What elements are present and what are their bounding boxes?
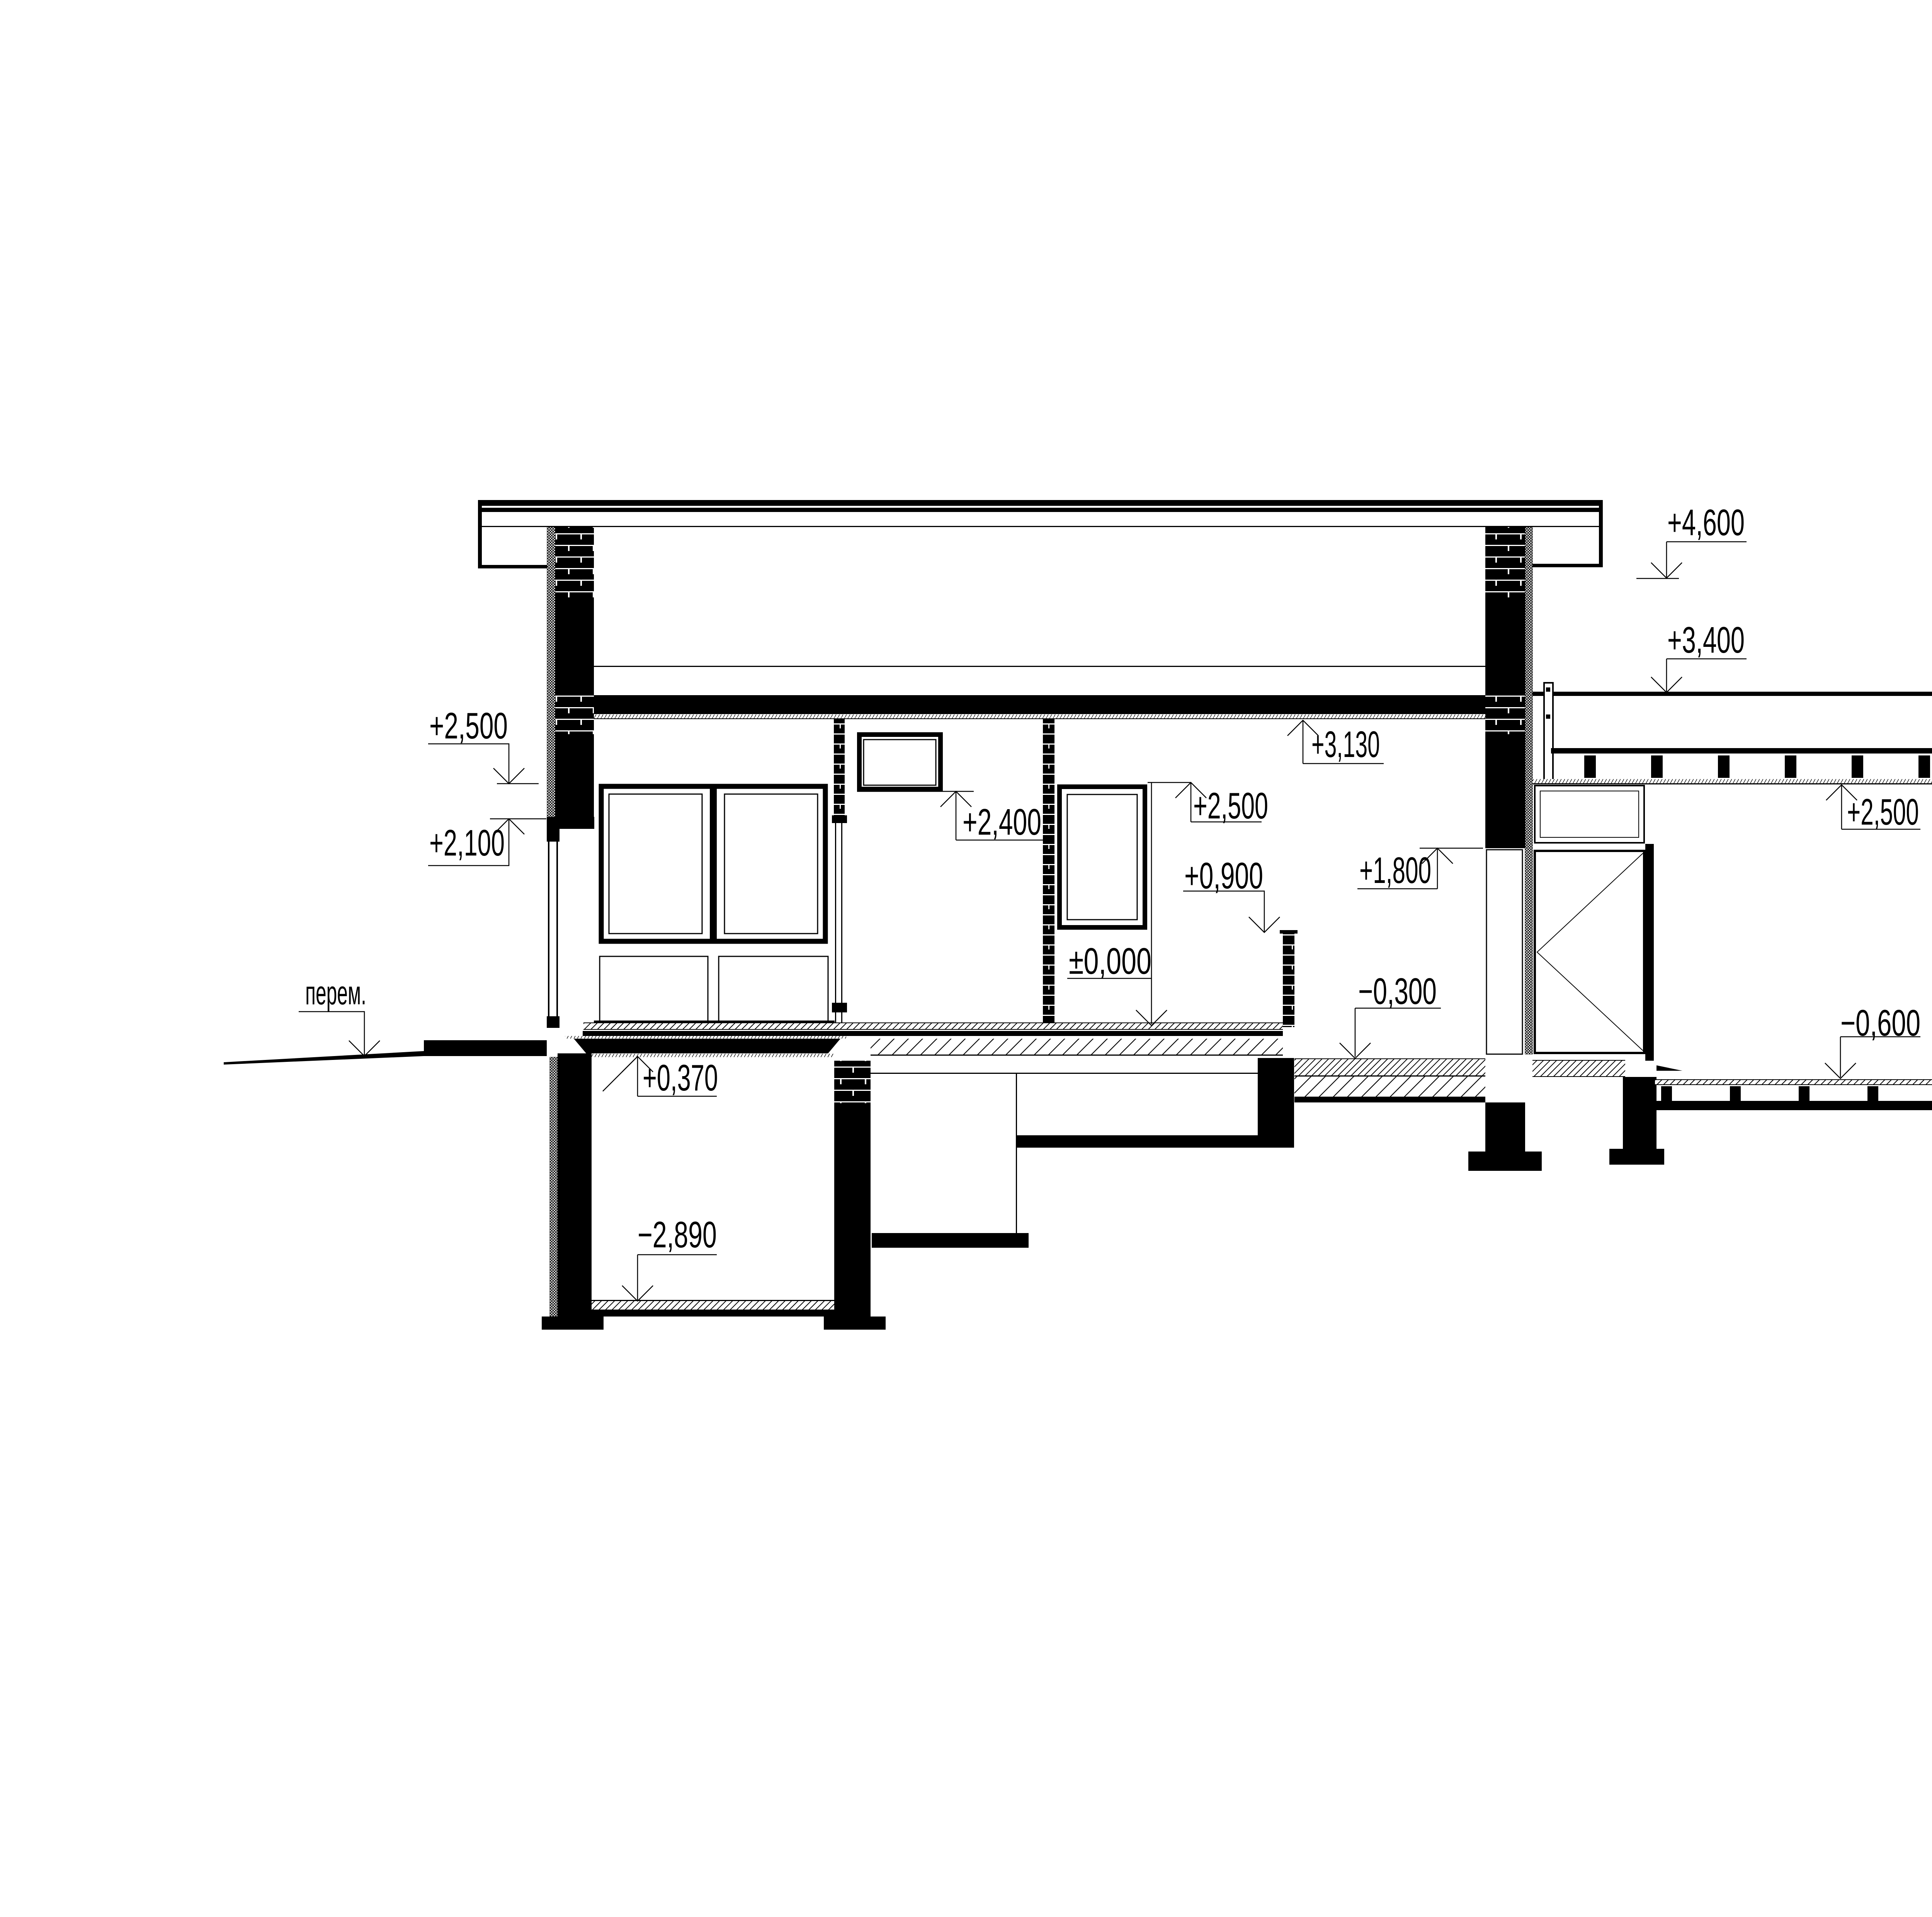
svg-text:+2,500: +2,500 [429, 705, 508, 747]
svg-text:+0,900: +0,900 [1184, 855, 1263, 896]
svg-text:±0,000: ±0,000 [1069, 941, 1151, 982]
svg-text:+3,130: +3,130 [1311, 724, 1380, 765]
svg-text:+2,500: +2,500 [1847, 791, 1919, 833]
svg-text:−0,300: −0,300 [1358, 971, 1437, 1012]
svg-text:+2,500: +2,500 [1193, 785, 1268, 827]
svg-text:+2,100: +2,100 [429, 822, 505, 864]
svg-text:перем.: перем. [305, 975, 366, 1012]
svg-text:−2,890: −2,890 [638, 1214, 717, 1255]
svg-text:+3,400: +3,400 [1667, 619, 1745, 661]
svg-text:+0,370: +0,370 [643, 1057, 718, 1099]
svg-text:+2,400: +2,400 [963, 801, 1041, 843]
svg-text:+4,600: +4,600 [1667, 502, 1745, 543]
svg-text:−0,600: −0,600 [1840, 1002, 1920, 1044]
svg-text:+1,800: +1,800 [1359, 850, 1431, 891]
